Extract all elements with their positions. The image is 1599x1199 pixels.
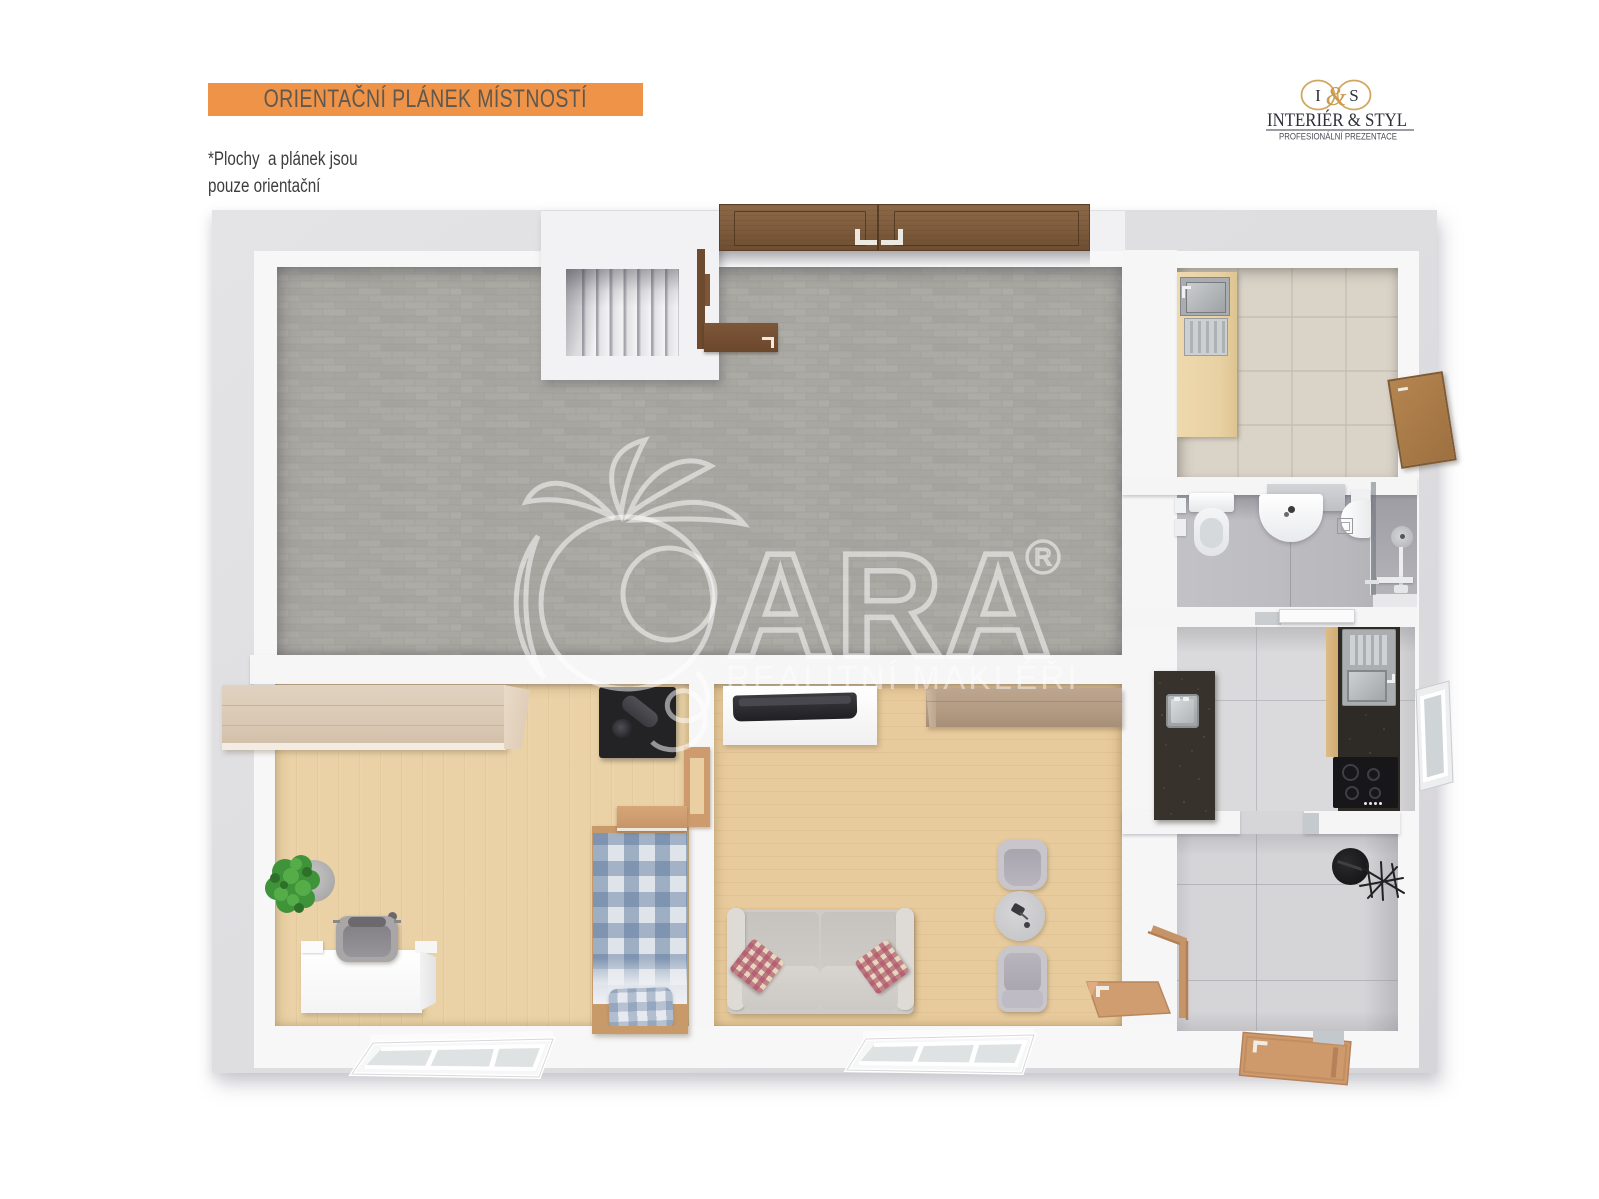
svg-text:R: R xyxy=(1034,544,1051,571)
svg-text:REALITNÍ MAKLÉŘI: REALITNÍ MAKLÉŘI xyxy=(726,659,1080,696)
